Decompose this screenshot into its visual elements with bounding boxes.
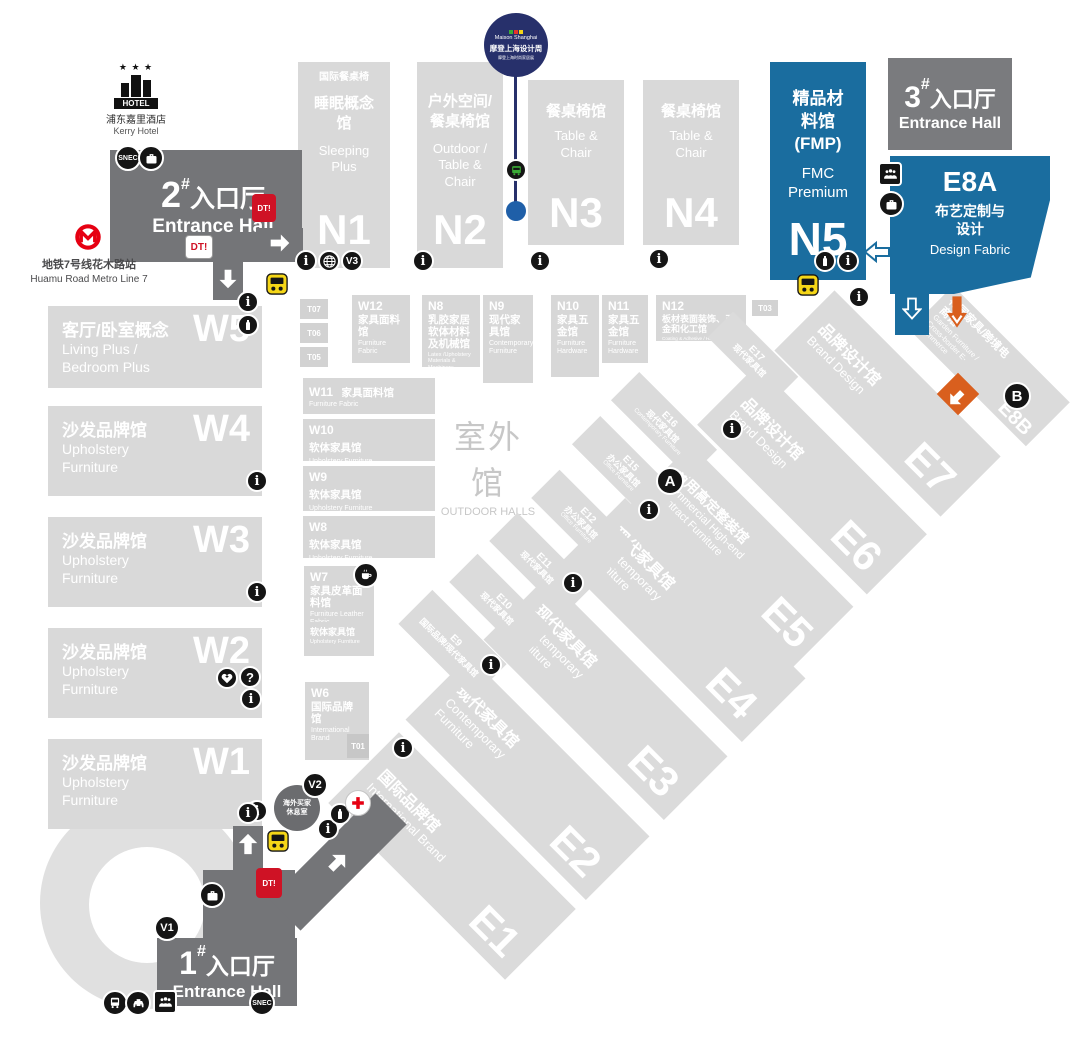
info-icon: i bbox=[480, 654, 502, 676]
service-box-t03: T03 bbox=[752, 300, 778, 316]
info-icon: i bbox=[648, 248, 670, 270]
hotel-building-icon-bars bbox=[98, 73, 174, 97]
up-arrow-icon bbox=[236, 832, 260, 861]
e8a-exit-tab bbox=[895, 283, 929, 335]
hall-name-en: Upholstery Furniture bbox=[62, 774, 172, 809]
hall-name-en: Table & Chair bbox=[657, 128, 725, 162]
hall-name-en: Outdoor / Table & Chair bbox=[422, 141, 498, 192]
hall-n11: N11 家具五金馆 Furniture Hardware bbox=[602, 295, 648, 363]
hotel-sign: HOTEL bbox=[114, 98, 158, 109]
hall-number: W4 bbox=[193, 408, 250, 451]
dt-badge-white: DT! bbox=[185, 235, 213, 259]
outdoor-halls-label: 室外馆 OUTDOOR HALLS bbox=[438, 412, 538, 518]
globe-icon bbox=[318, 250, 340, 272]
hall-subtitle: 国际餐桌椅 bbox=[314, 72, 374, 84]
info-icon: i bbox=[848, 286, 870, 308]
hall-w9: W9 软体家具馆 Upholstery Furniture bbox=[303, 466, 435, 511]
meeting-point-icon bbox=[878, 162, 902, 186]
info-icon: i bbox=[529, 250, 551, 272]
hall-w1: 沙发品牌馆 Upholstery Furniture W1 bbox=[48, 739, 262, 829]
maison-pin-circle: Maison Shanghai 摩登上海设计周 摩登上海时尚家居展 bbox=[484, 13, 548, 77]
outdoor-halls-cn: 室外馆 bbox=[438, 412, 538, 504]
info-icon: i bbox=[638, 499, 660, 521]
maison-title-cn: 摩登上海设计周 bbox=[490, 43, 543, 54]
hall-name-cn: 餐桌椅馆 bbox=[528, 102, 624, 122]
hall-number: E1 bbox=[462, 898, 528, 964]
hall-number: E4 bbox=[698, 660, 764, 726]
v3-badge: V3 bbox=[341, 250, 363, 272]
exhibition-floor-map: 客厅/卧室概念 Living Plus / Bedroom Plus W5 沙发… bbox=[0, 0, 1080, 1043]
shuttle-bus-green-icon bbox=[505, 159, 527, 181]
hall-n8: N8 乳胶家居软体材料及机械馆 Latex /Upholstery Materi… bbox=[422, 295, 480, 367]
hall-name-en: Table & Chair bbox=[542, 128, 610, 162]
hall-name-cn: 睡眠概念馆 bbox=[307, 94, 381, 135]
hall-name-cn: 户外空间/餐桌椅馆 bbox=[418, 92, 502, 133]
water-bottle-icon bbox=[237, 314, 259, 336]
hall-n3: 餐桌椅馆 Table & Chair N3 bbox=[528, 80, 624, 245]
coffee-cup-icon bbox=[353, 562, 379, 588]
hall-number: N1 bbox=[298, 206, 390, 254]
info-icon: i bbox=[240, 688, 262, 710]
info-icon: i bbox=[562, 572, 584, 594]
up-right-arrow-icon bbox=[321, 845, 355, 879]
taxi-icon bbox=[125, 990, 151, 1016]
info-icon: i bbox=[295, 250, 317, 272]
hall-number: E8A bbox=[890, 166, 1050, 198]
luggage-storage-icon bbox=[199, 882, 225, 908]
info-icon: i bbox=[246, 581, 268, 603]
hall-n10: N10 家具五金馆 Furniture Hardware bbox=[551, 295, 599, 377]
hall-n5: 精品材料馆 (FMP) FMC Premium N5 bbox=[770, 62, 866, 280]
down-arrow-orange-icon bbox=[946, 292, 968, 337]
hall-n9: N9 现代家具馆 Contemporary Furniture bbox=[483, 295, 533, 383]
hall-e8a: E8A 布艺定制与设计 Design Fabric bbox=[890, 156, 1050, 294]
hall-w12: W12 家具面料馆 Furniture Fabric bbox=[352, 295, 410, 363]
metro-logo-icon bbox=[73, 222, 103, 257]
water-bottle-icon bbox=[814, 250, 836, 272]
v1-badge: V1 bbox=[154, 915, 180, 941]
kerry-hotel-landmark: ★ ★ ★ HOTEL 浦东嘉里酒店 Kerry Hotel bbox=[98, 62, 174, 136]
metro-station-cn: 地铁7号线花木路站 bbox=[8, 256, 170, 272]
hall-name-cn: 餐桌椅馆 bbox=[643, 102, 739, 122]
service-box-t05: T05 bbox=[300, 347, 328, 367]
hall-upholstery-small: 软体家具馆 Upholstery Furniture bbox=[304, 622, 374, 656]
down-arrow-hollow-icon bbox=[902, 297, 922, 320]
v2-badge: V2 bbox=[302, 772, 328, 798]
hall-number: E3 bbox=[620, 738, 686, 804]
info-icon: i bbox=[246, 470, 268, 492]
luggage-storage-icon bbox=[138, 145, 164, 171]
dt-badge-red: DT! bbox=[252, 194, 276, 222]
meeting-point-icon bbox=[153, 990, 177, 1014]
info-icon: i bbox=[721, 418, 743, 440]
zone-marker-a: A bbox=[656, 467, 684, 495]
hall-w4: 沙发品牌馆 Upholstery Furniture W4 bbox=[48, 406, 262, 496]
shuttle-bus-icon bbox=[797, 274, 819, 296]
hall-number: W1 bbox=[193, 741, 250, 784]
hall-name-en: Sleeping Plus bbox=[305, 143, 383, 177]
hall-w5: 客厅/卧室概念 Living Plus / Bedroom Plus W5 bbox=[48, 306, 262, 388]
maison-pin-stem bbox=[514, 72, 517, 206]
snec-badge: SNEC bbox=[249, 990, 275, 1016]
hall-n1: 国际餐桌椅 睡眠概念馆 Sleeping Plus N1 bbox=[298, 62, 390, 268]
shuttle-bus-icon bbox=[267, 830, 289, 852]
hall-name-en: Upholstery Furniture bbox=[62, 441, 172, 476]
info-icon: i bbox=[237, 802, 259, 824]
hall-n4: 餐桌椅馆 Table & Chair N4 bbox=[643, 80, 739, 245]
aed-heart-icon bbox=[216, 667, 238, 689]
service-box-t01: T01 bbox=[347, 734, 369, 758]
hall-w10: W10 软体家具馆 Upholstery Furniture bbox=[303, 419, 435, 461]
hall-number: N2 bbox=[417, 206, 503, 254]
outdoor-halls-en: OUTDOOR HALLS bbox=[438, 506, 538, 518]
lounge-label: 海外买家休息室 bbox=[281, 799, 313, 817]
hall-number: W3 bbox=[193, 519, 250, 562]
metro-station-en: Huamu Road Metro Line 7 bbox=[8, 274, 170, 285]
info-icon: i bbox=[412, 250, 434, 272]
zone-marker-b: B bbox=[1003, 382, 1031, 410]
hall-name-en: Upholstery Furniture bbox=[62, 552, 172, 587]
hotel-name-en: Kerry Hotel bbox=[98, 126, 174, 136]
luggage-storage-icon bbox=[878, 191, 904, 217]
hall-number: E7 bbox=[897, 435, 963, 501]
maison-brand: Maison Shanghai bbox=[495, 35, 538, 41]
metro-station-label: 地铁7号线花木路站 Huamu Road Metro Line 7 bbox=[8, 256, 170, 285]
hall-w8: W8 软体家具馆 Upholstery Furniture bbox=[303, 516, 435, 558]
hall-number: N4 bbox=[643, 189, 739, 237]
service-box-t06: T06 bbox=[300, 323, 328, 343]
hall-w11: W11 家具面料馆 Furniture Fabric bbox=[303, 378, 435, 414]
hall-number: E6 bbox=[823, 513, 889, 579]
entrance-hall-3: 3#入口厅 Entrance Hall bbox=[888, 58, 1012, 150]
exit-tab-down bbox=[213, 258, 243, 300]
left-arrow-hollow-icon bbox=[863, 240, 891, 269]
exit-tab-right bbox=[256, 228, 303, 258]
info-icon: i bbox=[837, 250, 859, 272]
hall-w3: 沙发品牌馆 Upholstery Furniture W3 bbox=[48, 517, 262, 607]
down-arrow-icon bbox=[217, 268, 239, 290]
first-aid-icon bbox=[345, 790, 371, 816]
service-box-t07: T07 bbox=[300, 299, 328, 319]
hotel-name-cn: 浦东嘉里酒店 bbox=[98, 111, 174, 126]
hall-name-en: FMC Premium bbox=[777, 164, 859, 203]
hall-number: E2 bbox=[542, 818, 608, 884]
hall-number: W2 bbox=[193, 630, 250, 673]
maison-logo-icon bbox=[509, 30, 523, 34]
entrance-hall-1: 1#入口厅 Entrance Hall bbox=[157, 938, 297, 1006]
hall-name-en: Design Fabric bbox=[890, 242, 1050, 257]
hall-subtitle: (FMP) bbox=[770, 134, 866, 154]
hotel-building-icon: ★ ★ ★ bbox=[98, 62, 174, 73]
dt-badge-red: DT! bbox=[256, 868, 282, 898]
hall-name-cn: 精品材料馆 bbox=[781, 88, 855, 134]
hall-n2: 户外空间/餐桌椅馆 Outdoor / Table & Chair N2 bbox=[417, 62, 503, 268]
hall-name-en: Living Plus / Bedroom Plus bbox=[62, 341, 192, 376]
maison-pin-dot bbox=[506, 201, 526, 221]
hall-number: N3 bbox=[528, 189, 624, 237]
shuttle-bus-icon bbox=[266, 273, 288, 295]
question-info-icon: ? bbox=[239, 666, 261, 688]
hall-name-cn: 布艺定制与设计 bbox=[933, 202, 1007, 238]
info-icon: i bbox=[237, 291, 259, 313]
info-icon: i bbox=[392, 737, 414, 759]
maison-subtitle: 摩登上海时尚家居展 bbox=[498, 55, 534, 61]
hall-name-en: Upholstery Furniture bbox=[62, 663, 172, 698]
right-arrow-icon bbox=[269, 232, 291, 254]
